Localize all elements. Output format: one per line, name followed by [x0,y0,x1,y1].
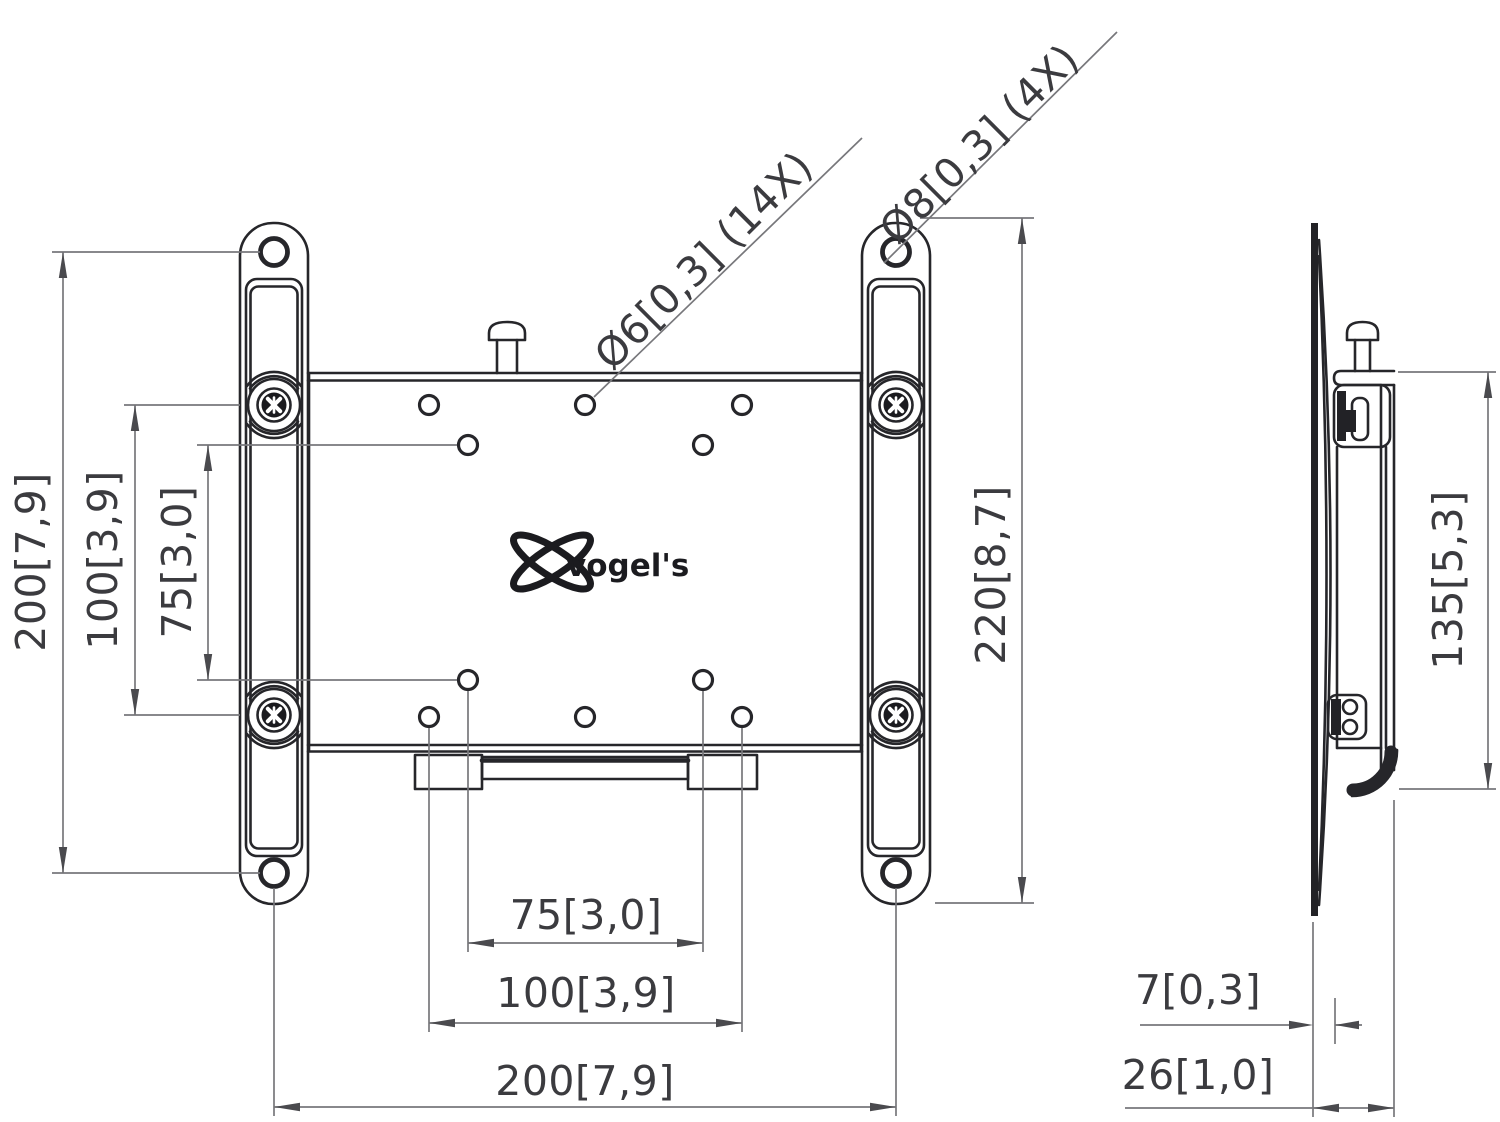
callout-strip-holes: Ø8[0,3] (4X) [870,35,1088,253]
bracket-top-flange [1334,371,1394,385]
dim-left-outer: 200[7,9] [7,472,55,651]
dim-bottom-inner: 75[3,0] [510,891,663,939]
logo-text: vogel's [566,548,689,584]
dim-bottom-mid: 100[3,9] [496,969,675,1017]
locking-pin-front [489,322,525,373]
dim-side-height: 135[5,3] [1424,490,1472,669]
dim-left-mid: 100[3,9] [79,470,127,649]
side-view [1311,223,1397,916]
dim-left-inner: 75[3,0] [153,486,201,639]
lower-clamp [1328,695,1366,739]
technical-drawing-page: 200[7,9] 100[3,9] 75[3,0] 75[3,0] 100[3,… [0,0,1500,1122]
adapter-strip-profile [1319,240,1337,905]
callout-plate-holes: Ø6[0,3] (14X) [585,142,822,379]
bottom-hook [1352,750,1397,796]
dim-side-depth: 26[1,0] [1122,1051,1275,1099]
wall-strip-left [240,223,308,904]
handle-bar [415,755,757,789]
wall-strip-right [862,223,930,904]
drawing-canvas: 200[7,9] 100[3,9] 75[3,0] 75[3,0] 100[3,… [0,0,1500,1122]
dimension-labels: 200[7,9] 100[3,9] 75[3,0] 75[3,0] 100[3,… [7,35,1472,1105]
dim-right-height: 220[8,7] [967,485,1015,664]
wall-plate-edge [1311,223,1318,916]
dim-side-thickness: 7[0,3] [1135,966,1261,1014]
dim-bottom-outer: 200[7,9] [495,1057,674,1105]
locking-pin-side [1347,322,1378,371]
